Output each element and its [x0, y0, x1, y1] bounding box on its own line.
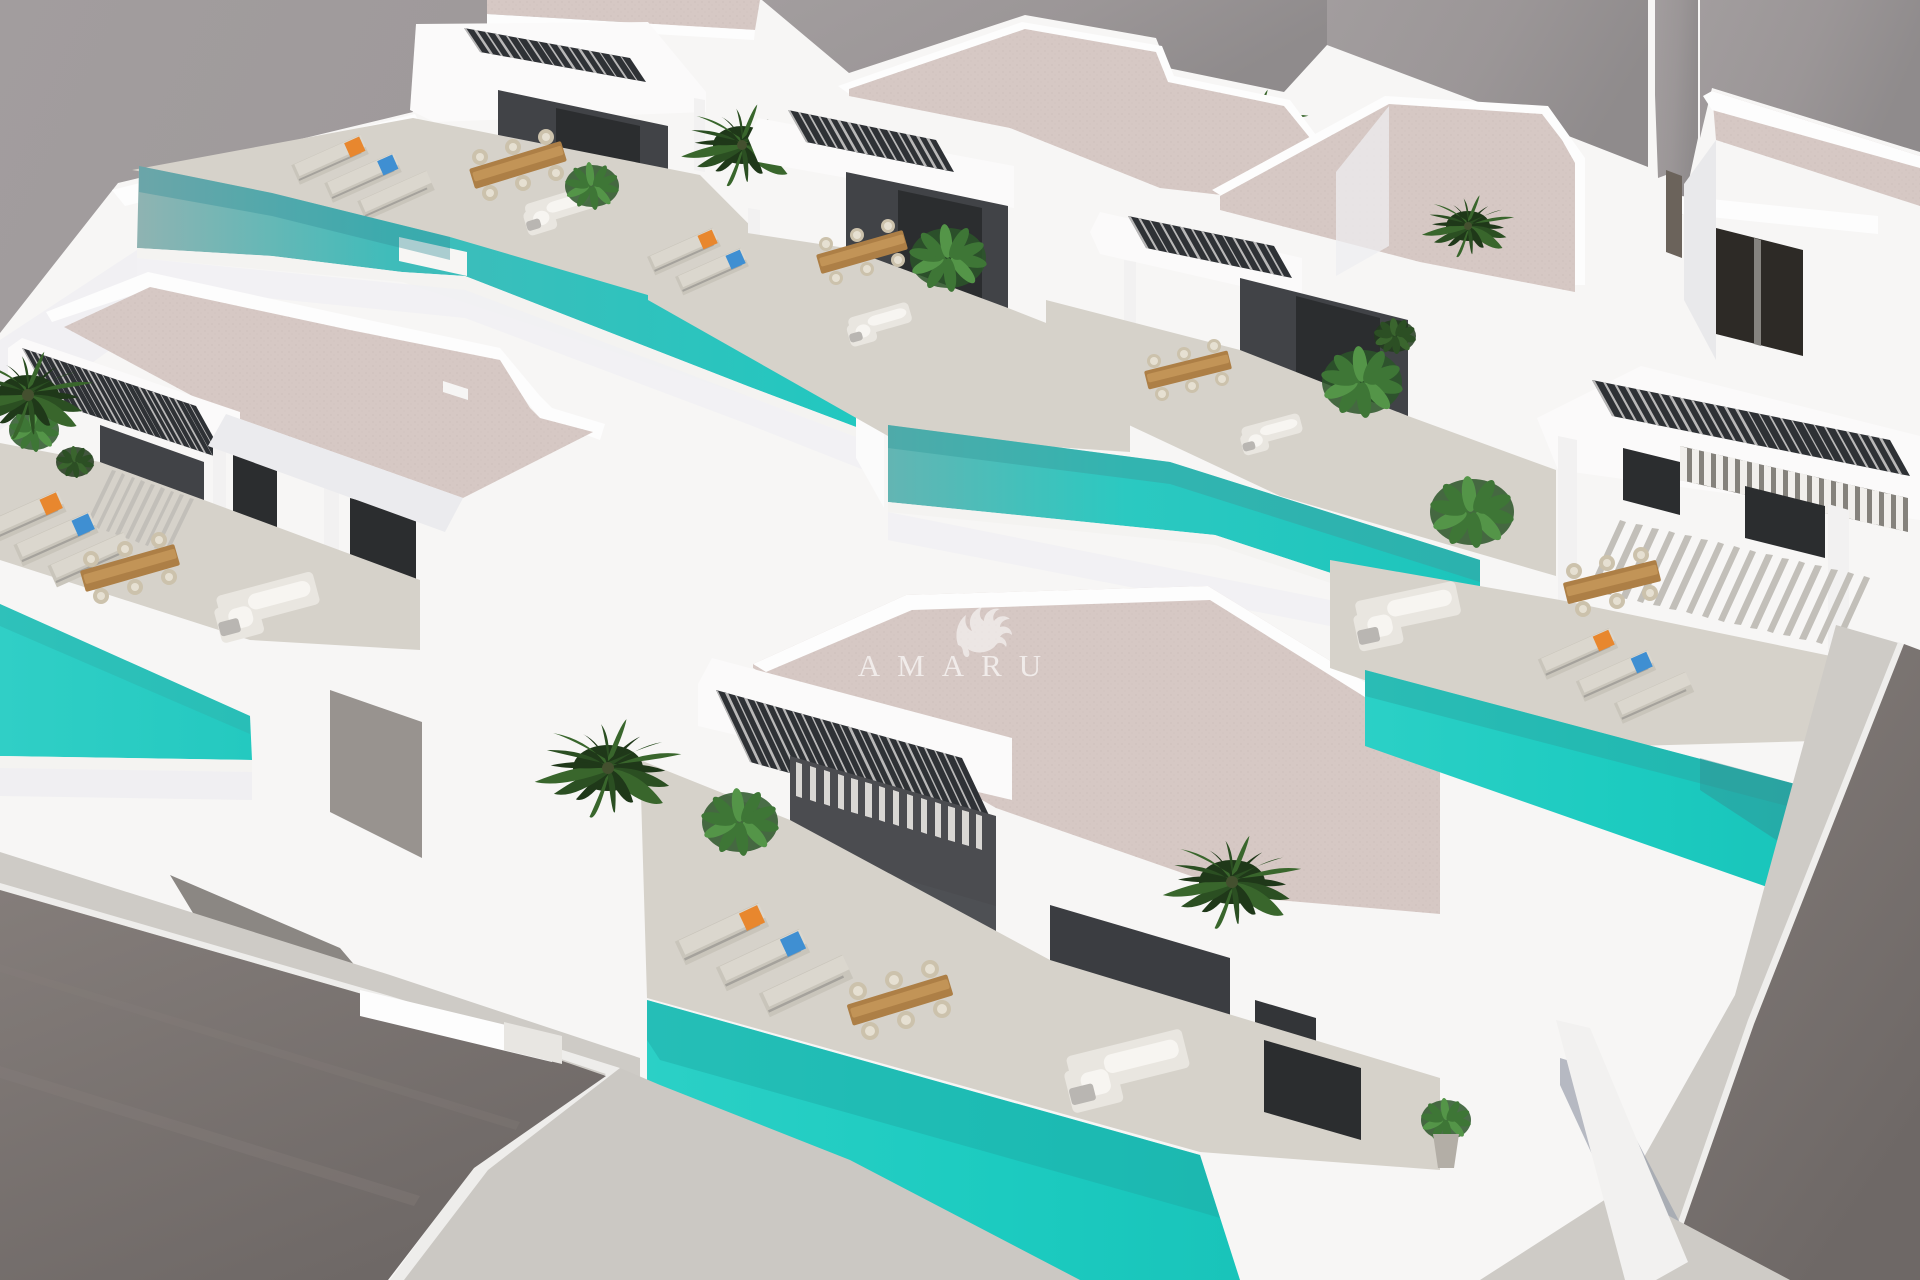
svg-text:AMARU: AMARU — [858, 648, 1058, 683]
